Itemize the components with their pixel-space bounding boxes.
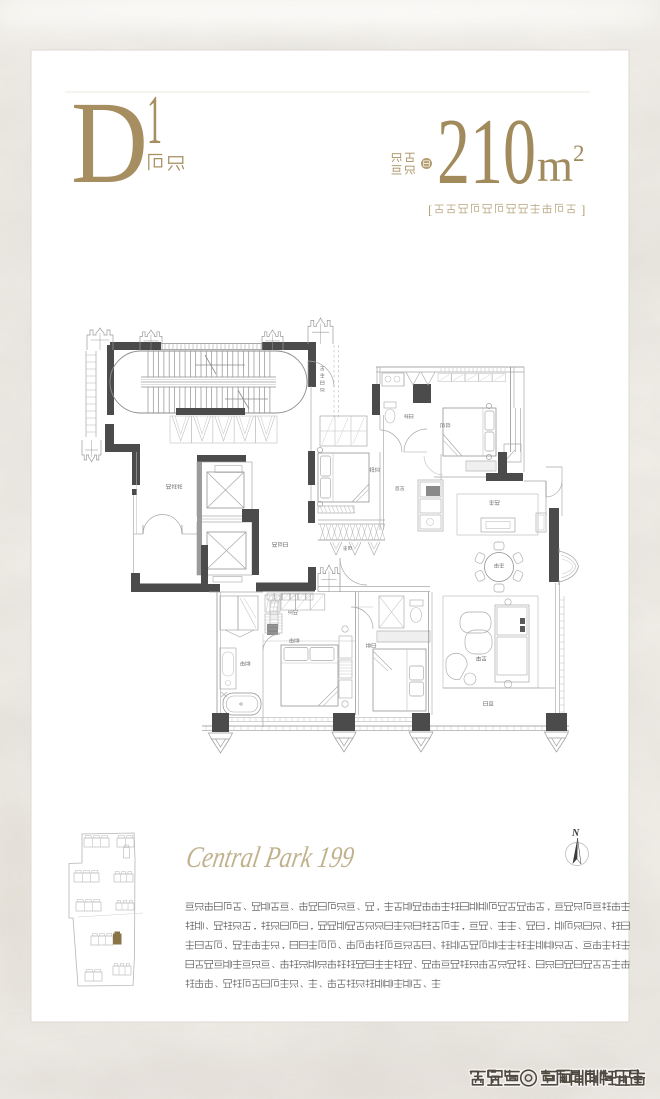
svg-text:Central Park 199: Central Park 199 (184, 840, 357, 874)
svg-text:]: ] (581, 202, 585, 217)
svg-text:N: N (571, 828, 580, 839)
svg-text:2: 2 (573, 141, 585, 166)
svg-text:1: 1 (147, 82, 162, 159)
svg-text:D: D (71, 77, 148, 208)
svg-text:210: 210 (437, 100, 536, 204)
svg-text:m: m (537, 140, 573, 191)
svg-text:[: [ (428, 202, 432, 217)
